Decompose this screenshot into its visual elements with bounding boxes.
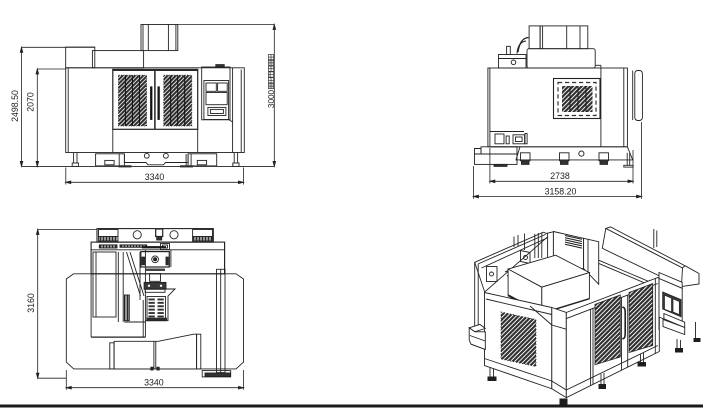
svg-text:3000: 3000 [267, 89, 276, 108]
svg-text:3340: 3340 [145, 172, 165, 182]
svg-text:3158.20: 3158.20 [545, 186, 577, 196]
svg-text:3160: 3160 [26, 293, 36, 313]
svg-text:2498.50: 2498.50 [10, 90, 20, 122]
svg-text:3340: 3340 [144, 378, 164, 388]
svg-text:2738: 2738 [550, 171, 570, 181]
svg-text:2070: 2070 [26, 92, 36, 112]
